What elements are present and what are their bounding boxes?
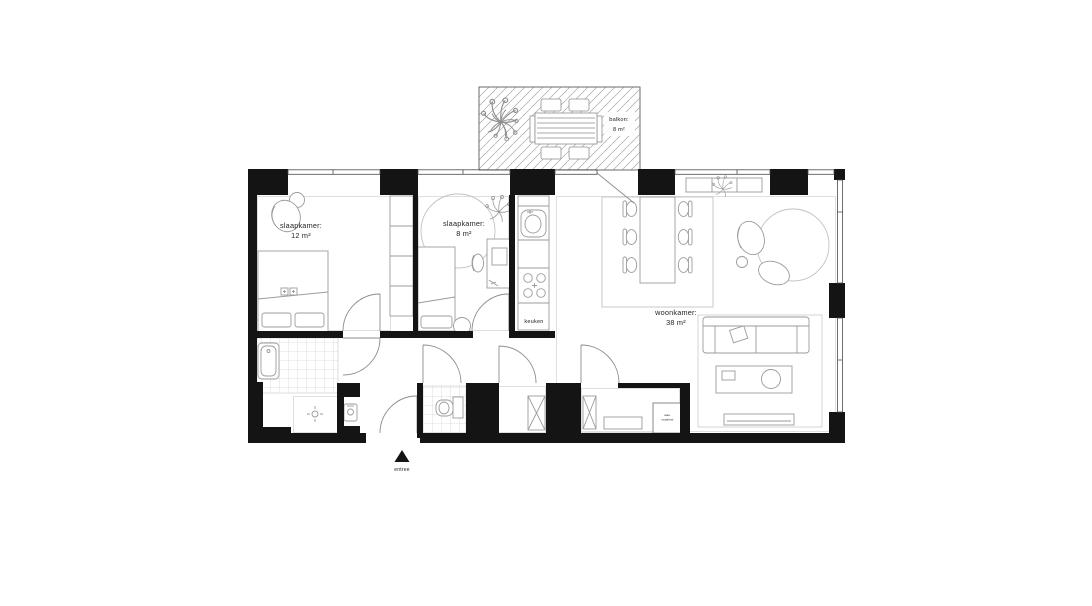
window: [675, 170, 770, 175]
wall-segment: [417, 331, 473, 338]
bedroom-divider-wall: [413, 195, 418, 333]
bottom-wall: [256, 433, 366, 443]
living-room-furniture: [602, 176, 829, 427]
side-table: [737, 257, 748, 268]
wall-segment: [495, 383, 499, 438]
toilet-icon: [436, 397, 463, 418]
wall-segment: [417, 383, 423, 438]
bottom-wall: [546, 433, 834, 443]
desk-chair: [473, 254, 484, 272]
bedroom2-label: slaapkamer:: [443, 219, 485, 228]
storage-shelf: [604, 417, 642, 429]
bathtub-icon: [258, 343, 279, 379]
window: [838, 180, 843, 283]
wall-block: [466, 383, 495, 438]
kitchen-divider-wall: [509, 195, 515, 333]
balcony-chair: [541, 147, 561, 159]
wall-column: [380, 169, 418, 195]
window: [808, 170, 834, 175]
entrance-door: [380, 396, 417, 433]
shower-drain-icon: [307, 406, 323, 422]
wall-block: [343, 383, 360, 397]
wall-block: [546, 383, 581, 438]
balcony-label: balkon:: [609, 117, 629, 123]
table-end: [530, 116, 535, 142]
bottom-wall: [420, 433, 546, 443]
entrance-marker: entree: [394, 450, 409, 473]
dining-chair: [623, 201, 637, 217]
washer-label-line2: machine: [662, 418, 674, 422]
washer-label-line1: was-: [664, 413, 671, 417]
wall-segment: [380, 331, 418, 338]
wall-corner: [834, 169, 845, 180]
wall-column: [510, 169, 555, 195]
wall-corner: [829, 412, 845, 443]
plant-icon: [486, 195, 511, 222]
bedroom1-furniture: [258, 193, 413, 336]
balcony-door: [597, 173, 634, 203]
low-bench: [724, 414, 794, 425]
window: [288, 170, 380, 175]
floor-plan-svg: balkon: 8 m²: [0, 0, 1092, 606]
bathroom-door: [343, 338, 380, 375]
closet-door: [499, 346, 536, 383]
bedroom1-label: slaapkamer:: [280, 221, 322, 230]
bedroom1-door: [343, 294, 380, 331]
bedroom2-furniture: [418, 194, 512, 335]
toilet-door: [423, 345, 461, 383]
shower-room-outline: [294, 397, 338, 433]
entrance-label: entree: [394, 467, 409, 473]
storage-cabinet: [583, 396, 596, 429]
dining-chair: [678, 201, 692, 217]
balcony: balkon: 8 m²: [479, 87, 640, 170]
washbasin-icon: [344, 404, 357, 421]
right-wall-block: [829, 283, 845, 318]
kitchen-label: keuken: [524, 319, 543, 325]
dining-table: [640, 197, 675, 283]
dining-chair: [623, 229, 637, 245]
balcony-area: 8 m²: [613, 127, 625, 133]
living-room-area: 38 m²: [666, 318, 686, 327]
bedroom2-door: [472, 294, 509, 331]
balcony-chair: [569, 99, 589, 111]
storage-door: [581, 345, 619, 383]
window: [838, 318, 843, 412]
bedroom2-area: 8 m²: [456, 229, 472, 238]
storage-top-wall: [618, 383, 690, 388]
pillow: [295, 313, 324, 327]
kitchen-counter: [518, 196, 549, 330]
wall-segment: [509, 331, 555, 338]
pillow: [421, 316, 452, 328]
dining-chair: [678, 257, 692, 273]
balcony-chair: [541, 99, 561, 111]
entrance-arrow-icon: [395, 450, 410, 462]
dining-chair: [678, 229, 692, 245]
wall-column: [770, 169, 808, 195]
tiled-floors: [257, 338, 466, 433]
balcony-chair: [569, 147, 589, 159]
living-room-label: woonkamer:: [654, 308, 697, 317]
pillow: [262, 313, 291, 327]
wall-segment: [248, 331, 343, 338]
bedroom1-area: 12 m²: [291, 231, 311, 240]
storage-right-wall: [680, 383, 690, 438]
sink-icon: [521, 210, 546, 237]
dining-chair: [623, 257, 637, 273]
closet-cabinet: [528, 396, 545, 430]
table-end: [597, 116, 602, 142]
wall-column: [638, 169, 675, 195]
floor-plan-page: { "colors": { "wall": "#141414", "furnit…: [0, 0, 1092, 606]
